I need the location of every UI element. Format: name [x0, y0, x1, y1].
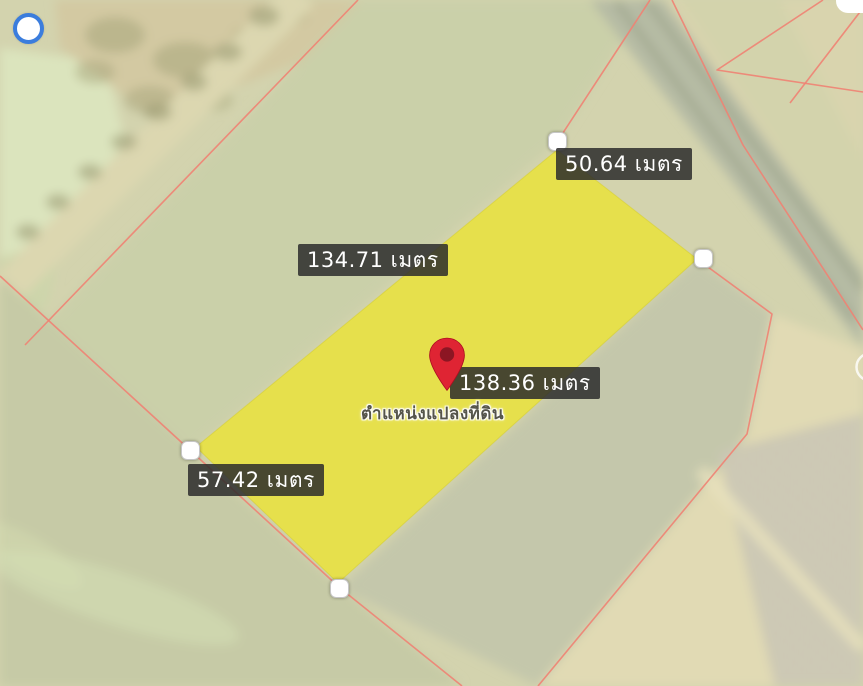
measurement-label-northeast: 50.64 เมตร	[556, 148, 692, 180]
measurement-label-southwest: 57.42 เมตร	[188, 464, 324, 496]
location-pin-icon[interactable]	[428, 337, 466, 392]
map-canvas: 50.64 เมตร 134.71 เมตร 138.36 เมตร 57.42…	[0, 0, 863, 686]
plot-vertex-handle-west[interactable]	[181, 441, 200, 460]
measurement-label-northwest: 134.71 เมตร	[298, 244, 448, 276]
plot-vertex-handle-east[interactable]	[694, 249, 713, 268]
measurement-label-southeast: 138.36 เมตร	[450, 367, 600, 399]
plot-caption: ตำแหน่งแปลงที่ดิน	[361, 400, 541, 427]
gps-location-icon	[13, 13, 44, 44]
plot-vertex-handle-south[interactable]	[330, 579, 349, 598]
